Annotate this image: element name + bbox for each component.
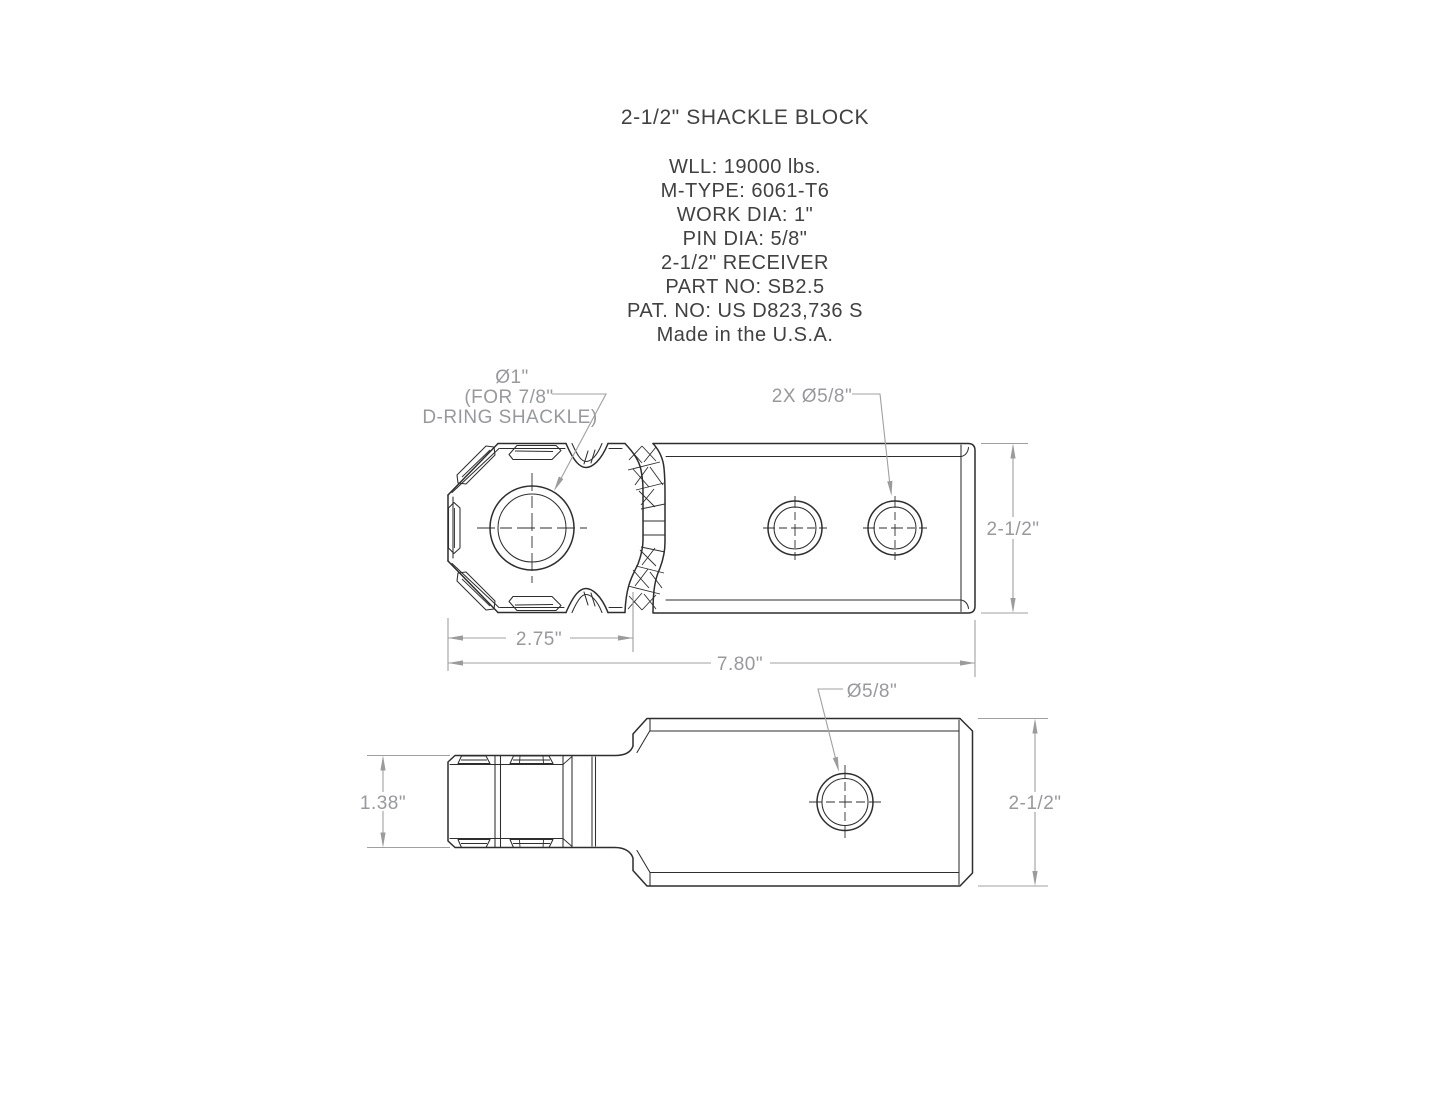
top-view-head-outline	[448, 444, 625, 613]
label-shackle-hole-2: (FOR 7/8"	[464, 387, 553, 408]
pin-hole-2	[863, 496, 927, 560]
top-view-weld-band	[625, 444, 665, 613]
top-view-dimensions: 2-1/2" 2.75" 7.80" Ø1" (FOR 7/8" D-RING …	[422, 367, 1039, 677]
engineering-drawing: 2-1/2" 2.75" 7.80" Ø1" (FOR 7/8" D-RING …	[0, 0, 1445, 1117]
side-view: 1.38" 2-1/2" Ø5/8"	[360, 681, 1062, 886]
side-view-dimensions: 1.38" 2-1/2" Ø5/8"	[360, 681, 1062, 886]
label-side-pin-hole: Ø5/8"	[847, 681, 897, 702]
dim-total-length: 7.80"	[717, 654, 763, 675]
label-shackle-hole-3: D-RING SHACKLE)	[422, 407, 597, 428]
dim-block-height: 2-1/2"	[1008, 793, 1061, 814]
shackle-hole	[477, 473, 587, 583]
dim-top-height: 2-1/2"	[986, 519, 1039, 540]
dim-head-length: 2.75"	[516, 629, 562, 650]
label-shackle-hole-1: Ø1"	[495, 367, 529, 388]
side-view-outline	[448, 719, 973, 887]
label-pin-holes: 2X Ø5/8"	[772, 386, 852, 407]
pin-hole-1	[763, 496, 827, 560]
side-view-slots	[458, 756, 553, 848]
drawing-sheet: 2-1/2" SHACKLE BLOCK WLL: 19000 lbs. M-T…	[0, 0, 1445, 1117]
side-view-pin-hole	[809, 765, 881, 839]
dim-tongue-height: 1.38"	[360, 793, 406, 814]
top-view: 2-1/2" 2.75" 7.80" Ø1" (FOR 7/8" D-RING …	[422, 367, 1039, 677]
